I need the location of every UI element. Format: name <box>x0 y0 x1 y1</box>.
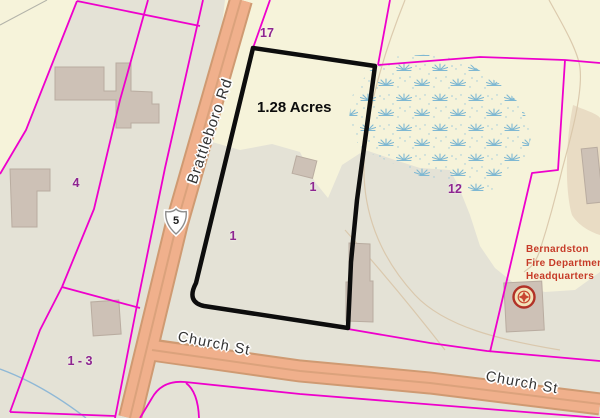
fire-hq-label: Bernardston Fire Department Headquarters <box>526 243 600 284</box>
parcel-label-12: 12 <box>448 182 462 196</box>
fire-hq-label-line1: Bernardston <box>526 243 600 257</box>
map-viewport[interactable]: Brattleboro Rd Church St Church St 5 17 … <box>0 0 600 418</box>
parcel-label-4: 4 <box>73 176 80 190</box>
parcel-label-17: 17 <box>260 26 274 40</box>
fire-hq-label-line2: Fire Department <box>526 257 600 271</box>
fire-station-icon <box>514 287 535 308</box>
route-5-shield-number: 5 <box>173 215 179 227</box>
fire-hq-label-line3: Headquarters <box>526 270 600 284</box>
parcel-label-1-roadside: 1 <box>230 229 237 243</box>
parcel-label-1-highlighted: 1 <box>310 180 317 194</box>
building-parcel1-3 <box>91 300 121 336</box>
parcel-label-1-3: 1 - 3 <box>67 354 92 368</box>
highlighted-parcel-acreage-label: 1.28 Acres <box>257 99 332 116</box>
